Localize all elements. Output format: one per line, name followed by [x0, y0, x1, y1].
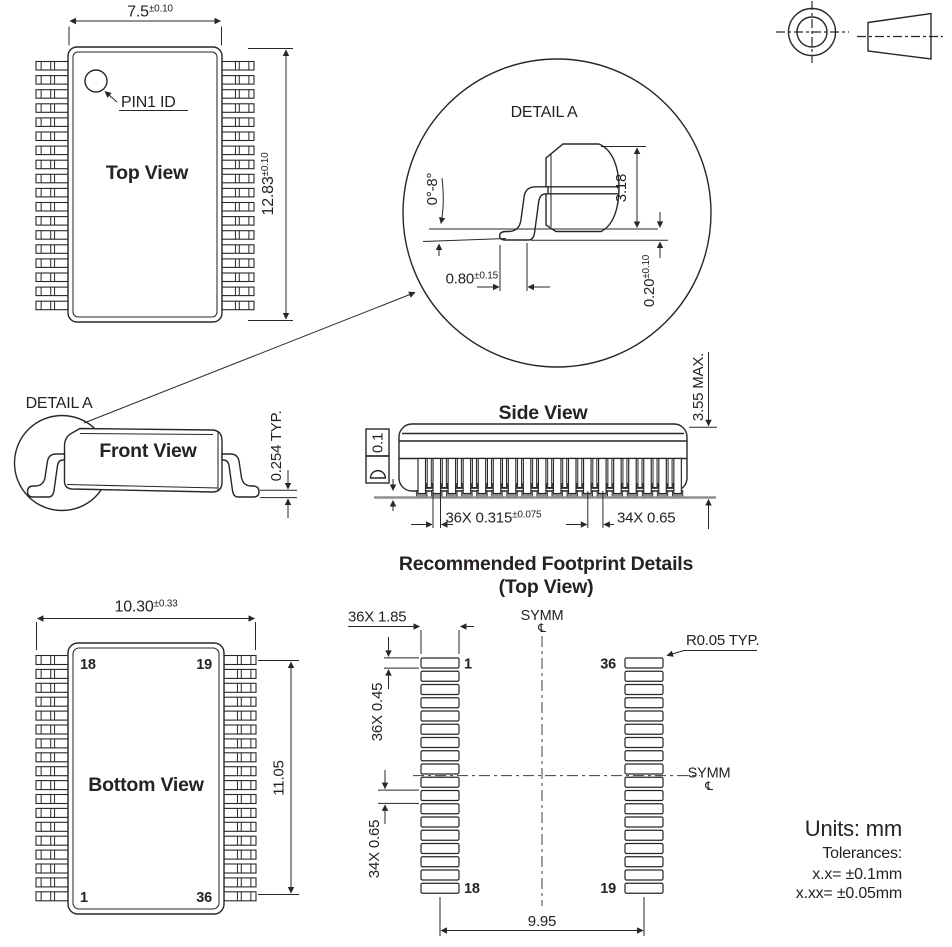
footprint-pad [625, 724, 663, 734]
side-lead [569, 459, 577, 494]
footprint-pad [421, 857, 459, 867]
footprint-pad [625, 791, 663, 801]
footprint-pad [421, 777, 459, 787]
side-lead [584, 459, 592, 494]
top-view-right-pins [222, 62, 254, 310]
footprint-pad [625, 830, 663, 840]
front-view-title: Front View [99, 440, 197, 462]
footprint-pad [421, 658, 459, 668]
bottom-pin-19: 19 [196, 657, 212, 673]
side-lead [674, 459, 682, 494]
footprint-pad [625, 844, 663, 854]
lead-angle-dim: 0°-8° [424, 172, 441, 205]
side-lead [614, 459, 622, 494]
footprint-pad [421, 751, 459, 761]
flatness-frame-symbol [366, 456, 389, 483]
footprint-pad [625, 658, 663, 668]
footprint-pad [421, 870, 459, 880]
side-lead [599, 459, 607, 494]
footprint-pad [421, 817, 459, 827]
tolerances-title: Tolerances: [822, 845, 902, 862]
side-lead [629, 459, 637, 494]
pad-length-dim: 36X 1.85 [348, 609, 406, 626]
footprint-pad [421, 724, 459, 734]
lead-thickness-dim: 0.254 TYP. [268, 411, 285, 482]
pad-number-36: 36 [600, 657, 616, 673]
bottom-view-right-pins [224, 656, 256, 901]
top-view-left-pins [36, 62, 68, 310]
pad-number-19: 19 [600, 881, 616, 897]
bottom-pin-18: 18 [80, 657, 96, 673]
footprint-pad [625, 711, 663, 721]
footprint-pad [625, 817, 663, 827]
footprint-pad [421, 698, 459, 708]
drawing-canvas: PIN1 ID Top View 7.5±0.10 12.83±0.10 DET… [0, 0, 952, 947]
lead-pitch-dim: 34X 0.65 [617, 510, 675, 527]
centerline-symbol-top: ℄ [537, 621, 546, 635]
side-lead-back [442, 459, 446, 488]
side-lead-back [548, 459, 552, 488]
bottom-span-dim: 11.05 [271, 760, 288, 795]
span-dim: 9.95 [528, 913, 556, 930]
side-lead-back [487, 459, 491, 488]
detail-lead-profile [500, 187, 548, 240]
side-lead [463, 459, 471, 494]
side-lead [553, 459, 561, 494]
side-lead [523, 459, 531, 494]
footprint-pad [421, 671, 459, 681]
notes-block: Units: mm Tolerances: x.x= ±0.1mm x.xx= … [796, 816, 902, 902]
footprint-pad [421, 738, 459, 748]
tolerance-note-2: x.xx= ±0.05mm [796, 885, 902, 902]
side-lead [493, 459, 501, 494]
pad-width-dim: 36X 0.45 [369, 683, 386, 741]
side-lead-back [638, 459, 642, 488]
side-lead-back [653, 459, 657, 488]
side-lead-back [518, 459, 522, 488]
projection-symbol [776, 1, 943, 63]
footprint-pad [421, 685, 459, 695]
bottom-width-dim: 10.30±0.33 [115, 599, 179, 616]
pin1-label: PIN1 ID [121, 94, 176, 111]
side-lead [538, 459, 546, 494]
side-lead [508, 459, 516, 494]
footprint-pad [421, 804, 459, 814]
footprint-pad [625, 870, 663, 880]
footprint-pad [625, 738, 663, 748]
side-lead-back [457, 459, 461, 488]
pad-number-1: 1 [464, 657, 472, 673]
package-drawing-sheet: PIN1 ID Top View 7.5±0.10 12.83±0.10 DET… [0, 0, 952, 947]
side-lead-back [608, 459, 612, 488]
corner-radius-dim: R0.05 TYP. [686, 632, 759, 649]
side-lead-back [533, 459, 537, 488]
side-lead [644, 459, 652, 494]
bottom-view-left-pins [36, 656, 68, 901]
max-height-dim: 3.55 MAX. [690, 353, 707, 421]
bottom-pin-36: 36 [196, 890, 212, 906]
pad-pitch-dim: 34X 0.65 [366, 820, 383, 878]
side-view: Side View 0.1 3.55 MAX. 36X 0.315±0.075 … [366, 352, 717, 529]
side-lead [433, 459, 441, 494]
footprint-pad [421, 764, 459, 774]
footprint-pad [421, 883, 459, 893]
bottom-view-title: Bottom View [88, 774, 205, 796]
angle-dim-arc [441, 178, 443, 224]
corner-radius-leader [667, 651, 684, 656]
side-lead-back [427, 459, 431, 488]
detail-a-label: DETAIL A [511, 104, 578, 121]
bottom-view: 18 19 1 36 Bottom View 10.30±0.33 11.05 [36, 599, 299, 915]
front-view-left-lead [28, 454, 65, 497]
footprint-pad [625, 764, 663, 774]
footprint-pad [421, 844, 459, 854]
side-lead-back [503, 459, 507, 488]
footprint-pad [421, 791, 459, 801]
front-view: DETAIL A Front View 0.254 TYP. [15, 395, 298, 518]
top-view: PIN1 ID Top View 7.5±0.10 12.83±0.10 [36, 4, 293, 323]
footprint-pad [625, 777, 663, 787]
footprint-subtitle: (Top View) [499, 576, 594, 598]
top-view-height-dim: 12.83±0.10 [260, 152, 277, 216]
front-view-right-lead [222, 454, 259, 497]
units-note: Units: mm [805, 816, 902, 841]
footprint-pad [625, 883, 663, 893]
footprint-pad [625, 671, 663, 681]
footprint-pad [625, 751, 663, 761]
detail-body-section [546, 144, 619, 232]
bottom-pin-1: 1 [80, 890, 88, 906]
footprint-pad [625, 698, 663, 708]
side-lead-back [593, 459, 597, 488]
flatness-value: 0.1 [370, 433, 387, 453]
side-view-title: Side View [499, 402, 589, 424]
standoff-dim: 0.20±0.10 [641, 254, 658, 307]
side-lead [659, 459, 667, 494]
tolerance-note-1: x.x= ±0.1mm [812, 866, 902, 883]
top-view-body [68, 47, 222, 322]
footprint-view: Recommended Footprint Details (Top View)… [348, 553, 759, 936]
front-view-detail-label: DETAIL A [26, 395, 93, 412]
footprint-pad [421, 830, 459, 840]
footprint-pad [421, 711, 459, 721]
side-lead [448, 459, 456, 494]
footprint-pad [625, 804, 663, 814]
side-lead-back [623, 459, 627, 488]
footprint-pad [625, 857, 663, 867]
centerline-symbol-right: ℄ [704, 779, 713, 793]
side-lead-back [472, 459, 476, 488]
detail-height-dim: 3.18 [613, 174, 630, 202]
seating-plane-symbol-icon [371, 471, 386, 478]
footprint-title: Recommended Footprint Details [399, 553, 694, 575]
pad-number-18: 18 [464, 881, 480, 897]
side-lead-back [578, 459, 582, 488]
top-view-width-dim: 7.5±0.10 [127, 4, 173, 21]
top-view-title: Top View [106, 162, 189, 184]
side-lead-back [563, 459, 567, 488]
side-lead [478, 459, 486, 494]
droop-line [423, 239, 506, 242]
foot-length-dim: 0.80±0.15 [446, 271, 499, 288]
footprint-pad [625, 685, 663, 695]
lead-width-dim: 36X 0.315±0.075 [446, 510, 543, 527]
side-lead [418, 459, 426, 494]
side-lead-back [668, 459, 672, 488]
